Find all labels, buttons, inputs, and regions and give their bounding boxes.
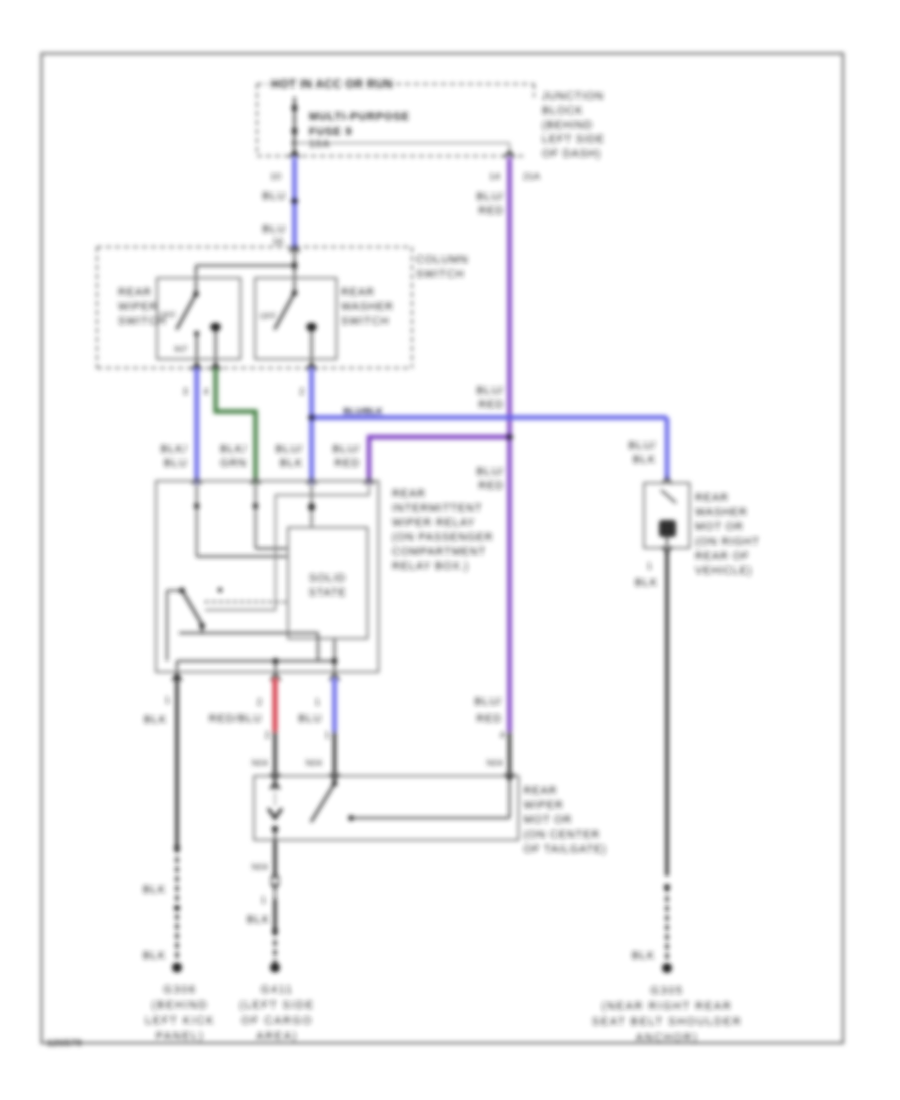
svg-text:1: 1 (261, 895, 266, 906)
svg-text:OFF: OFF (260, 311, 277, 321)
svg-text:WIPER RELAY: WIPER RELAY (392, 517, 475, 529)
svg-text:BLU/: BLU/ (332, 444, 360, 456)
svg-text:(LEFT SIDE: (LEFT SIDE (239, 1000, 314, 1012)
svg-text:AREA): AREA) (256, 1031, 298, 1043)
svg-text:GRN: GRN (220, 458, 247, 470)
svg-text:RED/BLU: RED/BLU (209, 713, 262, 725)
svg-text:BLOCK: BLOCK (542, 105, 583, 117)
svg-text:21A: 21A (523, 172, 541, 183)
svg-text:16: 16 (272, 237, 283, 248)
svg-text:REAR: REAR (524, 785, 558, 797)
svg-text:WASHER: WASHER (341, 301, 394, 313)
svg-text:14: 14 (489, 172, 500, 183)
svg-text:(BEHIND: (BEHIND (542, 119, 593, 131)
svg-text:G306: G306 (163, 984, 196, 996)
svg-text:MOT OR: MOT OR (695, 521, 744, 533)
svg-text:RED: RED (478, 399, 504, 411)
svg-text:BLU/: BLU/ (275, 444, 303, 456)
svg-text:2: 2 (265, 730, 270, 741)
svg-text:(NEAR RIGHT REAR: (NEAR RIGHT REAR (602, 1001, 733, 1013)
svg-text:COLUMN: COLUMN (416, 254, 468, 266)
svg-text:LEFT KICK: LEFT KICK (145, 1015, 215, 1027)
svg-text:3: 3 (183, 387, 188, 398)
svg-text:BLK: BLK (144, 714, 167, 726)
svg-text:BLU/BLK: BLU/BLK (343, 407, 383, 417)
svg-text:RED: RED (334, 458, 360, 470)
svg-text:SWITCH: SWITCH (416, 269, 464, 281)
svg-text:BLU/: BLU/ (474, 696, 502, 708)
svg-text:BLK: BLK (633, 454, 656, 466)
svg-text:RED: RED (478, 205, 504, 217)
svg-text:10A: 10A (309, 138, 331, 150)
svg-text:REAR: REAR (341, 287, 375, 299)
svg-text:OF CARGO: OF CARGO (241, 1015, 312, 1027)
svg-text:(ON PASSENGER: (ON PASSENGER (392, 532, 493, 544)
svg-text:BLU: BLU (262, 191, 286, 203)
svg-text:SWITCH: SWITCH (341, 316, 389, 328)
svg-text:BLK/: BLK/ (160, 444, 187, 456)
svg-text:1: 1 (165, 695, 170, 706)
svg-text:OF TAILGATE): OF TAILGATE) (524, 843, 607, 855)
svg-text:N04: N04 (251, 862, 268, 872)
svg-text:STATE: STATE (309, 587, 347, 599)
svg-text:OF DASH): OF DASH) (542, 148, 601, 160)
svg-text:2: 2 (299, 387, 304, 398)
svg-text:RED: RED (478, 480, 504, 492)
svg-text:VEHICLE): VEHICLE) (695, 565, 752, 577)
svg-text:1: 1 (315, 697, 320, 708)
svg-text:(BEHIND: (BEHIND (152, 1000, 208, 1012)
svg-text:126579: 126579 (47, 1038, 82, 1049)
svg-text:HOT IN ACC OR RUN: HOT IN ACC OR RUN (271, 79, 393, 91)
svg-text:N04: N04 (305, 758, 322, 768)
svg-text:BLK: BLK (280, 458, 303, 470)
svg-text:COMPARTMENT: COMPARTMENT (392, 546, 486, 558)
svg-text:REAR: REAR (118, 287, 152, 299)
svg-text:REAR: REAR (392, 488, 426, 500)
svg-text:BLK: BLK (635, 577, 658, 589)
svg-text:BLU/: BLU/ (476, 466, 504, 478)
svg-text:LEFT SIDE: LEFT SIDE (542, 134, 605, 146)
svg-text:ANCHOR): ANCHOR) (636, 1032, 699, 1044)
svg-text:(ON RIGHT: (ON RIGHT (695, 536, 760, 548)
svg-text:10: 10 (270, 172, 281, 183)
svg-text:BLU: BLU (164, 458, 188, 470)
svg-text:BLU: BLU (298, 713, 322, 725)
svg-text:PANEL): PANEL) (156, 1031, 205, 1043)
svg-text:N04: N04 (251, 758, 268, 768)
svg-text:WIPER: WIPER (118, 301, 158, 313)
svg-text:RELAY BOX.): RELAY BOX.) (392, 561, 469, 573)
svg-text:4: 4 (500, 730, 505, 741)
svg-text:BLU/: BLU/ (476, 385, 504, 397)
svg-text:BLU/: BLU/ (476, 191, 504, 203)
svg-text:MULTI-PURPOSE: MULTI-PURPOSE (309, 111, 410, 123)
svg-text:OFF: OFF (159, 310, 176, 320)
svg-text:REAR OF: REAR OF (695, 550, 750, 562)
svg-text:G411: G411 (261, 984, 294, 996)
svg-text:4: 4 (203, 387, 208, 398)
svg-text:BLK: BLK (143, 950, 166, 962)
svg-text:BLK/: BLK/ (220, 444, 247, 456)
svg-text:FUSE 9: FUSE 9 (309, 126, 352, 138)
svg-text:BLK: BLK (247, 914, 270, 926)
svg-text:BLU/: BLU/ (628, 440, 656, 452)
svg-text:RED: RED (476, 713, 502, 725)
svg-text:2: 2 (257, 697, 262, 708)
svg-text:G305: G305 (650, 985, 683, 997)
svg-text:JUNCTION: JUNCTION (542, 91, 604, 103)
svg-text:BLK: BLK (632, 950, 655, 962)
svg-text:SOLID: SOLID (309, 573, 346, 585)
svg-text:SEAT BELT SHOULDER: SEAT BELT SHOULDER (592, 1016, 742, 1028)
svg-text:N04: N04 (486, 758, 503, 768)
svg-text:REAR: REAR (695, 492, 729, 504)
svg-text:WASHER: WASHER (695, 507, 748, 519)
svg-text:INTERMITTENT: INTERMITTENT (392, 503, 482, 515)
svg-text:WIPER: WIPER (524, 800, 564, 812)
svg-text:1: 1 (325, 730, 330, 741)
svg-text:MOT OR: MOT OR (524, 814, 573, 826)
svg-text:(ON CENTER: (ON CENTER (524, 829, 600, 841)
svg-text:BLK: BLK (143, 884, 166, 896)
svg-text:INT: INT (174, 344, 188, 354)
svg-text:BLU: BLU (262, 224, 286, 236)
svg-text:1: 1 (647, 561, 652, 572)
